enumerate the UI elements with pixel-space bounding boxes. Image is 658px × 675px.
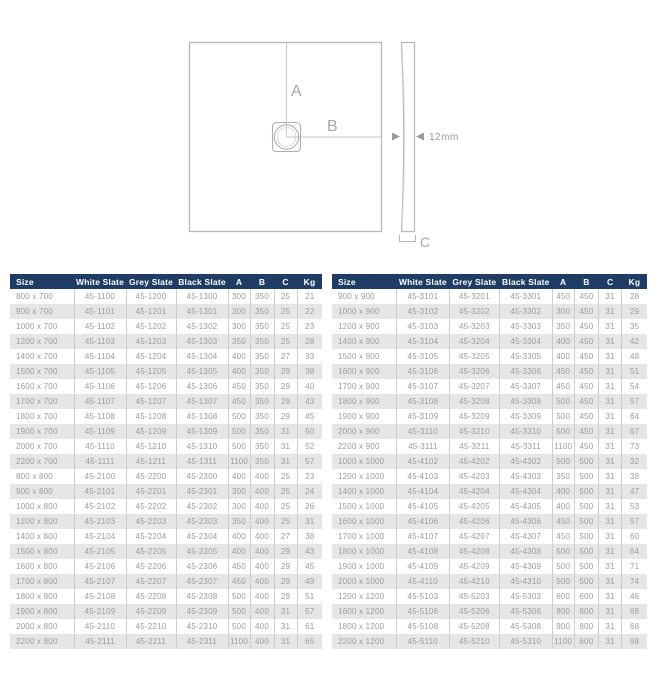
product-code-cell: 45-4102 bbox=[397, 454, 450, 469]
dimension-cell: 350 bbox=[250, 319, 274, 334]
product-code-cell: 45-2102 bbox=[74, 499, 126, 514]
dimension-cell: 31 bbox=[599, 589, 622, 604]
product-code-cell: 45-2106 bbox=[74, 559, 126, 574]
table-row: 1700 x 70045-110745-120745-1307450350294… bbox=[10, 394, 322, 409]
table-row: 1500 x 90045-310545-320545-3305400450314… bbox=[332, 349, 647, 364]
product-code-cell: 45-5306 bbox=[500, 604, 553, 619]
dimension-cell: 400 bbox=[552, 484, 574, 499]
table-row: 800 x 70045-110045-120045-13003003502521 bbox=[10, 289, 322, 304]
table-row: 900 x 70045-110145-120145-13013003502522 bbox=[10, 304, 322, 319]
dimension-cell: 33 bbox=[297, 349, 322, 364]
product-code-cell: 45-2310 bbox=[176, 619, 228, 634]
dimension-cell: 350 bbox=[228, 334, 250, 349]
dimension-cell: 600 bbox=[574, 634, 598, 649]
dimension-cell: 57 bbox=[297, 604, 322, 619]
product-code-cell: 45-2100 bbox=[74, 469, 126, 484]
product-code-cell: 45-2101 bbox=[74, 484, 126, 499]
product-code-cell: 45-5308 bbox=[500, 619, 553, 634]
product-code-cell: 45-3307 bbox=[500, 379, 553, 394]
dimension-cell: 400 bbox=[552, 499, 574, 514]
product-code-cell: 45-2111 bbox=[74, 634, 126, 649]
dimension-cell: 1100 bbox=[228, 454, 250, 469]
product-code-cell: 45-1207 bbox=[126, 394, 176, 409]
dimension-cell: 68 bbox=[622, 619, 647, 634]
product-code-cell: 45-1208 bbox=[126, 409, 176, 424]
dimension-cell: 31 bbox=[297, 514, 322, 529]
dimension-cell: 23 bbox=[297, 469, 322, 484]
dimension-cell: 35 bbox=[622, 319, 647, 334]
table-row: 1700 x 100045-410745-420745-430745050031… bbox=[332, 529, 647, 544]
product-code-cell: 45-2205 bbox=[126, 544, 176, 559]
product-code-cell: 45-3301 bbox=[500, 289, 553, 304]
product-code-cell: 45-1107 bbox=[74, 394, 126, 409]
size-cell: 1400 x 700 bbox=[10, 349, 74, 364]
dimension-cell: 74 bbox=[622, 574, 647, 589]
spec-table-left-body: 800 x 70045-110045-120045-13003003502521… bbox=[10, 289, 322, 649]
dimension-cell: 350 bbox=[250, 424, 274, 439]
dimension-cell: 21 bbox=[297, 289, 322, 304]
thickness-arrow-left bbox=[392, 133, 400, 141]
dimension-cell: 31 bbox=[274, 619, 297, 634]
product-code-cell: 45-3311 bbox=[500, 439, 553, 454]
product-code-cell: 45-4202 bbox=[449, 454, 499, 469]
product-code-cell: 45-3208 bbox=[449, 394, 499, 409]
size-cell: 2200 x 700 bbox=[10, 454, 74, 469]
dimension-a-label: A bbox=[291, 83, 302, 100]
product-code-cell: 45-3105 bbox=[397, 349, 450, 364]
product-code-cell: 45-1108 bbox=[74, 409, 126, 424]
product-code-cell: 45-5110 bbox=[397, 634, 450, 649]
size-cell: 900 x 800 bbox=[10, 484, 74, 499]
dimension-cell: 31 bbox=[599, 469, 622, 484]
header-a: A bbox=[552, 274, 574, 289]
product-code-cell: 45-1300 bbox=[176, 289, 228, 304]
dimension-cell: 500 bbox=[228, 439, 250, 454]
product-code-cell: 45-1105 bbox=[74, 364, 126, 379]
dimension-cell: 25 bbox=[274, 499, 297, 514]
product-code-cell: 45-5208 bbox=[449, 619, 499, 634]
table-row: 1200 x 100045-410345-420345-430335050031… bbox=[332, 469, 647, 484]
product-code-cell: 45-3210 bbox=[449, 424, 499, 439]
product-code-cell: 45-4308 bbox=[500, 544, 553, 559]
product-code-cell: 45-3203 bbox=[449, 319, 499, 334]
product-code-cell: 45-2105 bbox=[74, 544, 126, 559]
table-row: 1600 x 70045-110645-120645-1306450350294… bbox=[10, 379, 322, 394]
product-code-cell: 45-2103 bbox=[74, 514, 126, 529]
dimension-cell: 450 bbox=[574, 334, 598, 349]
dimension-cell: 46 bbox=[622, 589, 647, 604]
dimension-cell: 300 bbox=[228, 289, 250, 304]
product-code-cell: 45-3209 bbox=[449, 409, 499, 424]
dimension-cell: 31 bbox=[599, 529, 622, 544]
table-row: 1800 x 120045-510845-520845-530890080031… bbox=[332, 619, 647, 634]
size-cell: 1000 x 800 bbox=[10, 499, 74, 514]
dimension-cell: 450 bbox=[574, 379, 598, 394]
dimension-cell: 400 bbox=[250, 604, 274, 619]
header-c: C bbox=[599, 274, 622, 289]
table-row: 1200 x 120045-510345-520345-530360060031… bbox=[332, 589, 647, 604]
size-cell: 1500 x 800 bbox=[10, 544, 74, 559]
product-code-cell: 45-2104 bbox=[74, 529, 126, 544]
dimension-cell: 450 bbox=[552, 364, 574, 379]
product-code-cell: 45-2306 bbox=[176, 559, 228, 574]
table-row: 1200 x 80045-210345-220345-2303350400253… bbox=[10, 514, 322, 529]
dimension-cell: 24 bbox=[297, 484, 322, 499]
product-code-cell: 45-3211 bbox=[449, 439, 499, 454]
size-cell: 900 x 900 bbox=[332, 289, 397, 304]
product-code-cell: 45-1211 bbox=[126, 454, 176, 469]
product-code-cell: 45-2311 bbox=[176, 634, 228, 649]
dimension-cell: 1100 bbox=[228, 634, 250, 649]
table-row: 2000 x 80045-211045-221045-2310500400316… bbox=[10, 619, 322, 634]
dimension-cell: 29 bbox=[274, 394, 297, 409]
table-row: 1800 x 80045-210845-220845-2308500400295… bbox=[10, 589, 322, 604]
product-code-cell: 45-1103 bbox=[74, 334, 126, 349]
dimension-cell: 22 bbox=[297, 304, 322, 319]
dimension-cell: 300 bbox=[552, 304, 574, 319]
dimension-cell: 800 bbox=[552, 604, 574, 619]
header-grey-slate: Grey Slate bbox=[126, 274, 176, 289]
product-code-cell: 45-4305 bbox=[500, 499, 553, 514]
product-code-cell: 45-4104 bbox=[397, 484, 450, 499]
product-code-cell: 45-5103 bbox=[397, 589, 450, 604]
dimension-cell: 500 bbox=[552, 424, 574, 439]
product-code-cell: 45-4110 bbox=[397, 574, 450, 589]
table-row: 1700 x 80045-210745-220745-2307450400294… bbox=[10, 574, 322, 589]
dimension-cell: 1100 bbox=[552, 439, 574, 454]
dimension-cell: 27 bbox=[274, 529, 297, 544]
dimension-cell: 67 bbox=[622, 424, 647, 439]
product-code-cell: 45-4207 bbox=[449, 529, 499, 544]
product-code-cell: 45-4103 bbox=[397, 469, 450, 484]
dimension-cell: 350 bbox=[552, 469, 574, 484]
spec-table-right: SizeWhite SlateGrey SlateBlack SlateABCK… bbox=[332, 274, 647, 649]
dimension-cell: 500 bbox=[552, 409, 574, 424]
dimension-cell: 500 bbox=[552, 394, 574, 409]
size-cell: 1600 x 700 bbox=[10, 379, 74, 394]
dimension-cell: 25 bbox=[274, 304, 297, 319]
dimension-cell: 800 bbox=[574, 604, 598, 619]
dimension-cell: 31 bbox=[599, 454, 622, 469]
table-row: 1500 x 100045-410545-420545-430540050031… bbox=[332, 499, 647, 514]
dimension-cell: 31 bbox=[599, 334, 622, 349]
product-code-cell: 45-4208 bbox=[449, 544, 499, 559]
dimension-cell: 29 bbox=[274, 574, 297, 589]
dimension-cell: 29 bbox=[274, 409, 297, 424]
size-cell: 1900 x 800 bbox=[10, 604, 74, 619]
dimension-cell: 31 bbox=[599, 574, 622, 589]
dimension-cell: 350 bbox=[250, 289, 274, 304]
dimension-cell: 28 bbox=[297, 334, 322, 349]
dimension-cell: 500 bbox=[228, 409, 250, 424]
header-kg: Kg bbox=[622, 274, 647, 289]
dimension-cell: 350 bbox=[250, 364, 274, 379]
dimension-cell: 800 bbox=[574, 619, 598, 634]
dimension-cell: 52 bbox=[297, 439, 322, 454]
product-code-cell: 45-2109 bbox=[74, 604, 126, 619]
dimension-cell: 29 bbox=[274, 379, 297, 394]
dimension-cell: 400 bbox=[552, 334, 574, 349]
dimension-cell: 43 bbox=[297, 544, 322, 559]
dimension-cell: 450 bbox=[574, 424, 598, 439]
dimension-cell: 32 bbox=[622, 454, 647, 469]
table-row: 2000 x 100045-411045-421045-431050050031… bbox=[332, 574, 647, 589]
product-code-cell: 45-3304 bbox=[500, 334, 553, 349]
product-code-cell: 45-4105 bbox=[397, 499, 450, 514]
table-row: 1600 x 120045-510645-520645-530680080031… bbox=[332, 604, 647, 619]
thickness-label: 12mm bbox=[429, 132, 459, 143]
dimension-cell: 61 bbox=[297, 619, 322, 634]
dimension-cell: 450 bbox=[574, 304, 598, 319]
table-row: 2200 x 90045-311145-321145-3311110045031… bbox=[332, 439, 647, 454]
product-code-cell: 45-3205 bbox=[449, 349, 499, 364]
dimension-cell: 31 bbox=[599, 304, 622, 319]
dimension-cell: 500 bbox=[574, 574, 598, 589]
table-row: 1000 x 80045-210245-220245-2302300400252… bbox=[10, 499, 322, 514]
dimension-cell: 500 bbox=[552, 544, 574, 559]
product-code-cell: 45-2204 bbox=[126, 529, 176, 544]
size-cell: 2000 x 700 bbox=[10, 439, 74, 454]
header-b: B bbox=[574, 274, 598, 289]
product-code-cell: 45-2304 bbox=[176, 529, 228, 544]
size-cell: 2200 x 900 bbox=[332, 439, 397, 454]
table-row: 1900 x 80045-210945-220945-2309500400315… bbox=[10, 604, 322, 619]
product-code-cell: 45-4209 bbox=[449, 559, 499, 574]
dimension-cell: 400 bbox=[250, 529, 274, 544]
dimension-cell: 27 bbox=[274, 349, 297, 364]
table-row: 1400 x 70045-110445-120445-1304400350273… bbox=[10, 349, 322, 364]
dimension-cell: 350 bbox=[552, 319, 574, 334]
tray-dimension-diagram: A B 12mm C bbox=[140, 30, 500, 258]
product-code-cell: 45-3109 bbox=[397, 409, 450, 424]
product-code-cell: 45-5106 bbox=[397, 604, 450, 619]
dimension-cell: 25 bbox=[274, 319, 297, 334]
dimension-cell: 450 bbox=[574, 289, 598, 304]
product-code-cell: 45-4210 bbox=[449, 574, 499, 589]
header-black-slate: Black Slate bbox=[176, 274, 228, 289]
product-code-cell: 45-1308 bbox=[176, 409, 228, 424]
product-code-cell: 45-4206 bbox=[449, 514, 499, 529]
dimension-cell: 64 bbox=[622, 544, 647, 559]
spec-table-left: SizeWhite SlateGrey SlateBlack SlateABCK… bbox=[10, 274, 322, 649]
table-row: 1700 x 90045-310745-320745-3307450450315… bbox=[332, 379, 647, 394]
spec-table-right-header: SizeWhite SlateGrey SlateBlack SlateABCK… bbox=[332, 274, 647, 289]
dimension-cell: 450 bbox=[228, 379, 250, 394]
product-code-cell: 45-2206 bbox=[126, 559, 176, 574]
dimension-cell: 600 bbox=[552, 589, 574, 604]
dimension-cell: 400 bbox=[250, 544, 274, 559]
dimension-cell: 31 bbox=[274, 439, 297, 454]
product-code-cell: 45-1210 bbox=[126, 439, 176, 454]
table-row: 800 x 80045-210045-220045-23004004002523 bbox=[10, 469, 322, 484]
dimension-cell: 450 bbox=[574, 319, 598, 334]
dimension-cell: 400 bbox=[228, 364, 250, 379]
product-code-cell: 45-1101 bbox=[74, 304, 126, 319]
dimension-cell: 400 bbox=[250, 574, 274, 589]
product-code-cell: 45-4106 bbox=[397, 514, 450, 529]
dimension-cell: 350 bbox=[250, 349, 274, 364]
product-code-cell: 45-3306 bbox=[500, 364, 553, 379]
dimension-cell: 400 bbox=[250, 634, 274, 649]
size-cell: 1000 x 700 bbox=[10, 319, 74, 334]
size-cell: 1200 x 900 bbox=[332, 319, 397, 334]
dimension-cell: 450 bbox=[574, 394, 598, 409]
table-row: 1600 x 80045-210645-220645-2306450400294… bbox=[10, 559, 322, 574]
product-code-cell: 45-4107 bbox=[397, 529, 450, 544]
product-code-cell: 45-5206 bbox=[449, 604, 499, 619]
size-cell: 1000 x 1000 bbox=[332, 454, 397, 469]
product-code-cell: 45-1303 bbox=[176, 334, 228, 349]
product-code-cell: 45-1102 bbox=[74, 319, 126, 334]
dimension-cell: 400 bbox=[250, 499, 274, 514]
dimension-cell: 450 bbox=[228, 559, 250, 574]
product-code-cell: 45-2301 bbox=[176, 484, 228, 499]
product-code-cell: 45-3107 bbox=[397, 379, 450, 394]
product-code-cell: 45-3310 bbox=[500, 424, 553, 439]
table-row: 1000 x 70045-110245-120245-1302300350252… bbox=[10, 319, 322, 334]
product-code-cell: 45-1310 bbox=[176, 439, 228, 454]
dimension-cell: 450 bbox=[552, 529, 574, 544]
dimension-cell: 500 bbox=[228, 604, 250, 619]
product-code-cell: 45-1305 bbox=[176, 364, 228, 379]
dimension-cell: 31 bbox=[599, 349, 622, 364]
dimension-cell: 300 bbox=[228, 319, 250, 334]
product-code-cell: 45-1205 bbox=[126, 364, 176, 379]
dimension-cell: 450 bbox=[552, 379, 574, 394]
dimension-cell: 64 bbox=[622, 409, 647, 424]
table-row: 2200 x 80045-211145-221145-2311110040031… bbox=[10, 634, 322, 649]
table-row: 1400 x 80045-210445-220445-2304400400273… bbox=[10, 529, 322, 544]
product-code-cell: 45-2107 bbox=[74, 574, 126, 589]
product-code-cell: 45-2200 bbox=[126, 469, 176, 484]
dimension-cell: 53 bbox=[622, 499, 647, 514]
dimension-cell: 400 bbox=[552, 349, 574, 364]
dimension-cell: 49 bbox=[297, 574, 322, 589]
dimension-cell: 45 bbox=[297, 559, 322, 574]
table-row: 1600 x 90045-310645-320645-3306450450315… bbox=[332, 364, 647, 379]
product-code-cell: 45-1202 bbox=[126, 319, 176, 334]
dimension-cell: 28 bbox=[622, 289, 647, 304]
table-row: 2200 x 70045-111145-121145-1311110035031… bbox=[10, 454, 322, 469]
product-code-cell: 45-3103 bbox=[397, 319, 450, 334]
size-cell: 1500 x 900 bbox=[332, 349, 397, 364]
dimension-cell: 25 bbox=[274, 334, 297, 349]
dimension-cell: 31 bbox=[599, 424, 622, 439]
header-size: Size bbox=[332, 274, 397, 289]
dimension-cell: 1100 bbox=[552, 634, 574, 649]
product-code-cell: 45-5310 bbox=[500, 634, 553, 649]
dimension-cell: 450 bbox=[552, 514, 574, 529]
table-row: 1200 x 70045-110345-120345-1303350350252… bbox=[10, 334, 322, 349]
size-cell: 1000 x 900 bbox=[332, 304, 397, 319]
dimension-cell: 73 bbox=[622, 439, 647, 454]
product-code-cell: 45-5203 bbox=[449, 589, 499, 604]
dimension-cell: 31 bbox=[599, 409, 622, 424]
product-code-cell: 45-1110 bbox=[74, 439, 126, 454]
dimension-cell: 25 bbox=[274, 514, 297, 529]
product-code-cell: 45-4204 bbox=[449, 484, 499, 499]
dimension-cell: 350 bbox=[250, 454, 274, 469]
product-code-cell: 45-1200 bbox=[126, 289, 176, 304]
size-cell: 1600 x 800 bbox=[10, 559, 74, 574]
product-code-cell: 45-4310 bbox=[500, 574, 553, 589]
dimension-cell: 500 bbox=[574, 514, 598, 529]
dimension-cell: 900 bbox=[552, 619, 574, 634]
dimension-cell: 500 bbox=[574, 469, 598, 484]
product-code-cell: 45-2209 bbox=[126, 604, 176, 619]
dimension-cell: 450 bbox=[552, 289, 574, 304]
product-code-cell: 45-2303 bbox=[176, 514, 228, 529]
dimension-cell: 300 bbox=[228, 499, 250, 514]
dimension-cell: 38 bbox=[297, 529, 322, 544]
size-cell: 1700 x 900 bbox=[332, 379, 397, 394]
product-code-cell: 45-1104 bbox=[74, 349, 126, 364]
size-cell: 1600 x 1000 bbox=[332, 514, 397, 529]
dimension-cell: 450 bbox=[574, 439, 598, 454]
dimension-cell: 350 bbox=[250, 379, 274, 394]
dimension-cell: 26 bbox=[297, 499, 322, 514]
product-code-cell: 45-1203 bbox=[126, 334, 176, 349]
table-row: 1900 x 70045-110945-120945-1309500350315… bbox=[10, 424, 322, 439]
dimension-cell: 400 bbox=[250, 484, 274, 499]
product-code-cell: 45-2201 bbox=[126, 484, 176, 499]
size-cell: 800 x 700 bbox=[10, 289, 74, 304]
dimension-cell: 500 bbox=[574, 559, 598, 574]
table-row: 2000 x 70045-111045-121045-1310500350315… bbox=[10, 439, 322, 454]
dimension-cell: 47 bbox=[622, 484, 647, 499]
dimension-cell: 31 bbox=[599, 289, 622, 304]
product-code-cell: 45-1209 bbox=[126, 424, 176, 439]
product-code-cell: 45-1206 bbox=[126, 379, 176, 394]
product-code-cell: 45-5108 bbox=[397, 619, 450, 634]
size-cell: 2000 x 1000 bbox=[332, 574, 397, 589]
dimension-cell: 400 bbox=[250, 619, 274, 634]
dimension-cell: 31 bbox=[599, 394, 622, 409]
product-code-cell: 45-3202 bbox=[449, 304, 499, 319]
product-code-cell: 45-3206 bbox=[449, 364, 499, 379]
dimension-cell: 500 bbox=[228, 424, 250, 439]
product-code-cell: 45-4303 bbox=[500, 469, 553, 484]
size-cell: 1800 x 700 bbox=[10, 409, 74, 424]
dimension-cell: 31 bbox=[599, 514, 622, 529]
product-code-cell: 45-1306 bbox=[176, 379, 228, 394]
table-row: 1900 x 90045-310945-320945-3309500450316… bbox=[332, 409, 647, 424]
product-code-cell: 45-5303 bbox=[500, 589, 553, 604]
dimension-cell: 31 bbox=[599, 499, 622, 514]
dimension-cell: 350 bbox=[250, 394, 274, 409]
product-code-cell: 45-1111 bbox=[74, 454, 126, 469]
product-code-cell: 45-2307 bbox=[176, 574, 228, 589]
product-code-cell: 45-1109 bbox=[74, 424, 126, 439]
table-row: 1400 x 100045-410445-420445-430440050031… bbox=[332, 484, 647, 499]
product-code-cell: 45-1309 bbox=[176, 424, 228, 439]
table-row: 1500 x 80045-210545-220545-2305400400294… bbox=[10, 544, 322, 559]
header-black-slate: Black Slate bbox=[500, 274, 553, 289]
size-cell: 1400 x 900 bbox=[332, 334, 397, 349]
product-code-cell: 45-3303 bbox=[500, 319, 553, 334]
dimension-cell: 400 bbox=[228, 469, 250, 484]
table-row: 1800 x 90045-310845-320845-3308500450315… bbox=[332, 394, 647, 409]
dimension-cell: 31 bbox=[599, 544, 622, 559]
dimension-cell: 38 bbox=[297, 364, 322, 379]
product-code-cell: 45-2108 bbox=[74, 589, 126, 604]
dimension-c-bracket bbox=[400, 235, 416, 242]
size-cell: 1900 x 700 bbox=[10, 424, 74, 439]
table-row: 1900 x 100045-410945-420945-430950050031… bbox=[332, 559, 647, 574]
dimension-cell: 98 bbox=[622, 634, 647, 649]
dimension-cell: 57 bbox=[297, 454, 322, 469]
dimension-cell: 400 bbox=[250, 559, 274, 574]
